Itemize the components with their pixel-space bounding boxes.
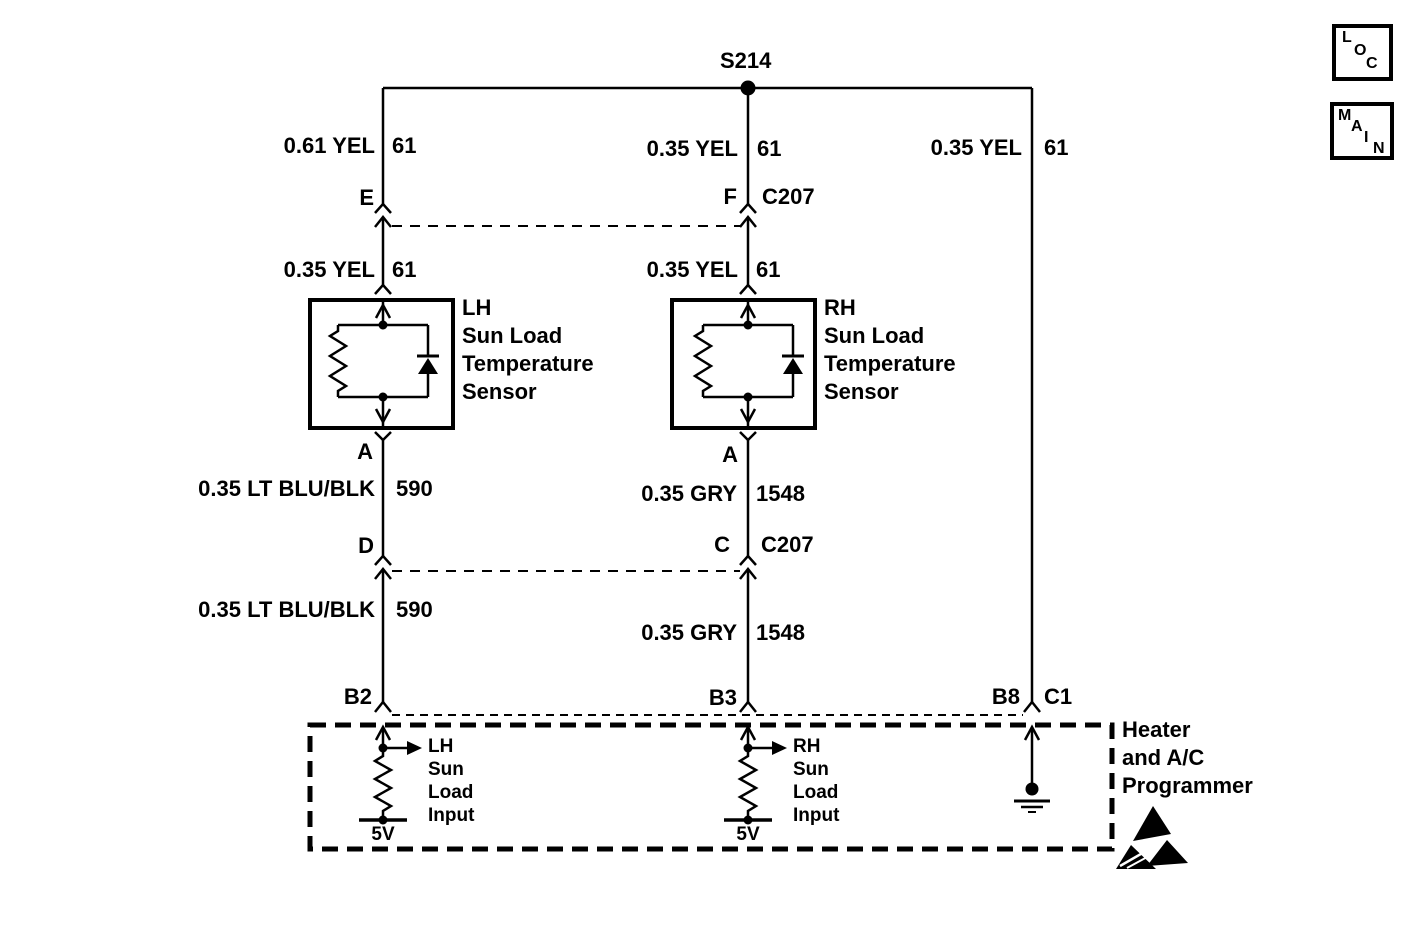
circuit-number-top-left: 61 — [392, 134, 416, 157]
main-letter: N — [1373, 141, 1385, 157]
junction-dot — [744, 393, 753, 402]
junction-dot — [379, 393, 388, 402]
resistor-symbol — [695, 325, 711, 397]
wire-spec-low-right-lower: 0.35 GRY — [538, 621, 737, 644]
wire-spec-low-left-lower: 0.35 LT BLU/BLK — [155, 598, 375, 621]
splice-label: S214 — [720, 49, 771, 72]
sensor-lh-label-line: Temperature — [462, 350, 594, 378]
connector-fork-f — [740, 204, 756, 213]
sensor-lh-label: LH Sun Load Temperature Sensor — [462, 294, 594, 406]
rh-input-line: Sun — [793, 758, 839, 781]
terminal-fork-rh-a — [740, 432, 756, 440]
sensor-rh-label-line: RH — [824, 294, 956, 322]
pin-label-b3: B3 — [637, 686, 737, 709]
rh-input-line: RH — [793, 735, 839, 758]
resistor-symbol — [330, 325, 346, 397]
sensor-rh-label: RH Sun Load Temperature Sensor — [824, 294, 956, 406]
wire-spec-top-center: 0.35 YEL — [538, 137, 738, 160]
circuit-number-top-center: 61 — [757, 137, 781, 160]
main-reference-box: M A I N — [1330, 102, 1394, 160]
pin-label-b8: B8 — [920, 685, 1020, 708]
programmer-rh-input-label: RH Sun Load Input — [793, 735, 839, 827]
signal-arrow-right-icon — [407, 741, 422, 755]
main-letter: M — [1338, 108, 1351, 124]
programmer-name-line: and A/C — [1122, 744, 1253, 772]
connector-label-c207-mid: C207 — [761, 533, 814, 556]
sensor-lh-symbol — [310, 300, 453, 428]
terminal-fork-b3 — [740, 702, 756, 712]
pin-label-e: E — [274, 186, 374, 209]
photodiode-symbol — [782, 325, 804, 397]
loc-letter: O — [1354, 43, 1366, 59]
junction-dot — [379, 321, 388, 330]
wire-spec-top-left: 0.61 YEL — [175, 134, 375, 157]
lh-input-line: LH — [428, 735, 474, 758]
circuit-number-mid-left: 61 — [392, 258, 416, 281]
circuit-number-low-left-upper: 590 — [396, 477, 433, 500]
pin-label-d: D — [274, 534, 374, 557]
terminal-fork-b2 — [375, 702, 391, 712]
junction-dot — [744, 321, 753, 330]
wire-spec-low-right-upper: 0.35 GRY — [538, 482, 737, 505]
pin-label-b2: B2 — [272, 685, 372, 708]
programmer-rh-input-circuit — [724, 727, 787, 825]
terminal-fork-lh-top — [375, 285, 391, 294]
photodiode-symbol — [417, 325, 439, 397]
sensor-rh-label-line: Sensor — [824, 378, 956, 406]
sensor-rh-label-line: Temperature — [824, 350, 956, 378]
circuit-number-low-right-lower: 1548 — [756, 621, 805, 644]
connector-label-c1: C1 — [1044, 685, 1072, 708]
main-letter: A — [1351, 119, 1363, 135]
circuit-number-low-left-lower: 590 — [396, 598, 433, 621]
voltage-label-lh-5v: 5V — [363, 825, 403, 845]
resistor-symbol — [375, 748, 391, 820]
pin-label-a-rh: A — [638, 443, 738, 466]
terminal-fork-b8 — [1024, 702, 1040, 712]
sensor-rh-label-line: Sun Load — [824, 322, 956, 350]
programmer-lh-input-label: LH Sun Load Input — [428, 735, 474, 827]
signal-arrow-right-icon — [772, 741, 787, 755]
lh-input-line: Load — [428, 781, 474, 804]
sensor-rh-symbol — [672, 300, 815, 428]
main-letter: I — [1364, 130, 1368, 146]
wire-spec-top-right: 0.35 YEL — [822, 136, 1022, 159]
voltage-label-rh-5v: 5V — [728, 825, 768, 845]
wire-spec-mid-left: 0.35 YEL — [175, 258, 375, 281]
resistor-symbol — [740, 748, 756, 820]
circuit-number-top-right: 61 — [1044, 136, 1068, 159]
wiring-diagram-page: L O C M A I N S214 0.61 YEL 61 0.35 YEL … — [0, 0, 1426, 933]
pin-label-c: C — [630, 533, 730, 556]
junction-dot — [379, 744, 388, 753]
wire-spec-mid-center: 0.35 YEL — [538, 258, 738, 281]
lh-input-line: Input — [428, 804, 474, 827]
loc-reference-box: L O C — [1332, 24, 1393, 81]
pin-label-f: F — [637, 185, 737, 208]
programmer-lh-input-circuit — [359, 727, 422, 825]
rh-input-line: Load — [793, 781, 839, 804]
pin-label-a-lh: A — [273, 440, 373, 463]
programmer-name-line: Heater — [1122, 716, 1253, 744]
rh-input-line: Input — [793, 804, 839, 827]
sensor-lh-label-line: Sun Load — [462, 322, 594, 350]
connector-fork-c — [740, 556, 756, 565]
wire-spec-low-left-upper: 0.35 LT BLU/BLK — [155, 477, 375, 500]
connector-fork-e — [375, 204, 391, 213]
lh-input-line: Sun — [428, 758, 474, 781]
programmer-name-line: Programmer — [1122, 772, 1253, 800]
junction-dot — [744, 744, 753, 753]
sensor-lh-label-line: Sensor — [462, 378, 594, 406]
circuit-number-mid-center: 61 — [756, 258, 780, 281]
terminal-fork-rh-top — [740, 285, 756, 294]
loc-letter: L — [1342, 30, 1352, 46]
sensor-lh-label-line: LH — [462, 294, 594, 322]
connector-fork-d — [375, 556, 391, 565]
circuit-number-low-right-upper: 1548 — [756, 482, 805, 505]
programmer-name-label: Heater and A/C Programmer — [1122, 716, 1253, 800]
terminal-fork-lh-a — [375, 432, 391, 440]
loc-letter: C — [1366, 56, 1378, 72]
esd-sensitive-icon — [1116, 806, 1188, 869]
connector-label-c207-top: C207 — [762, 185, 815, 208]
